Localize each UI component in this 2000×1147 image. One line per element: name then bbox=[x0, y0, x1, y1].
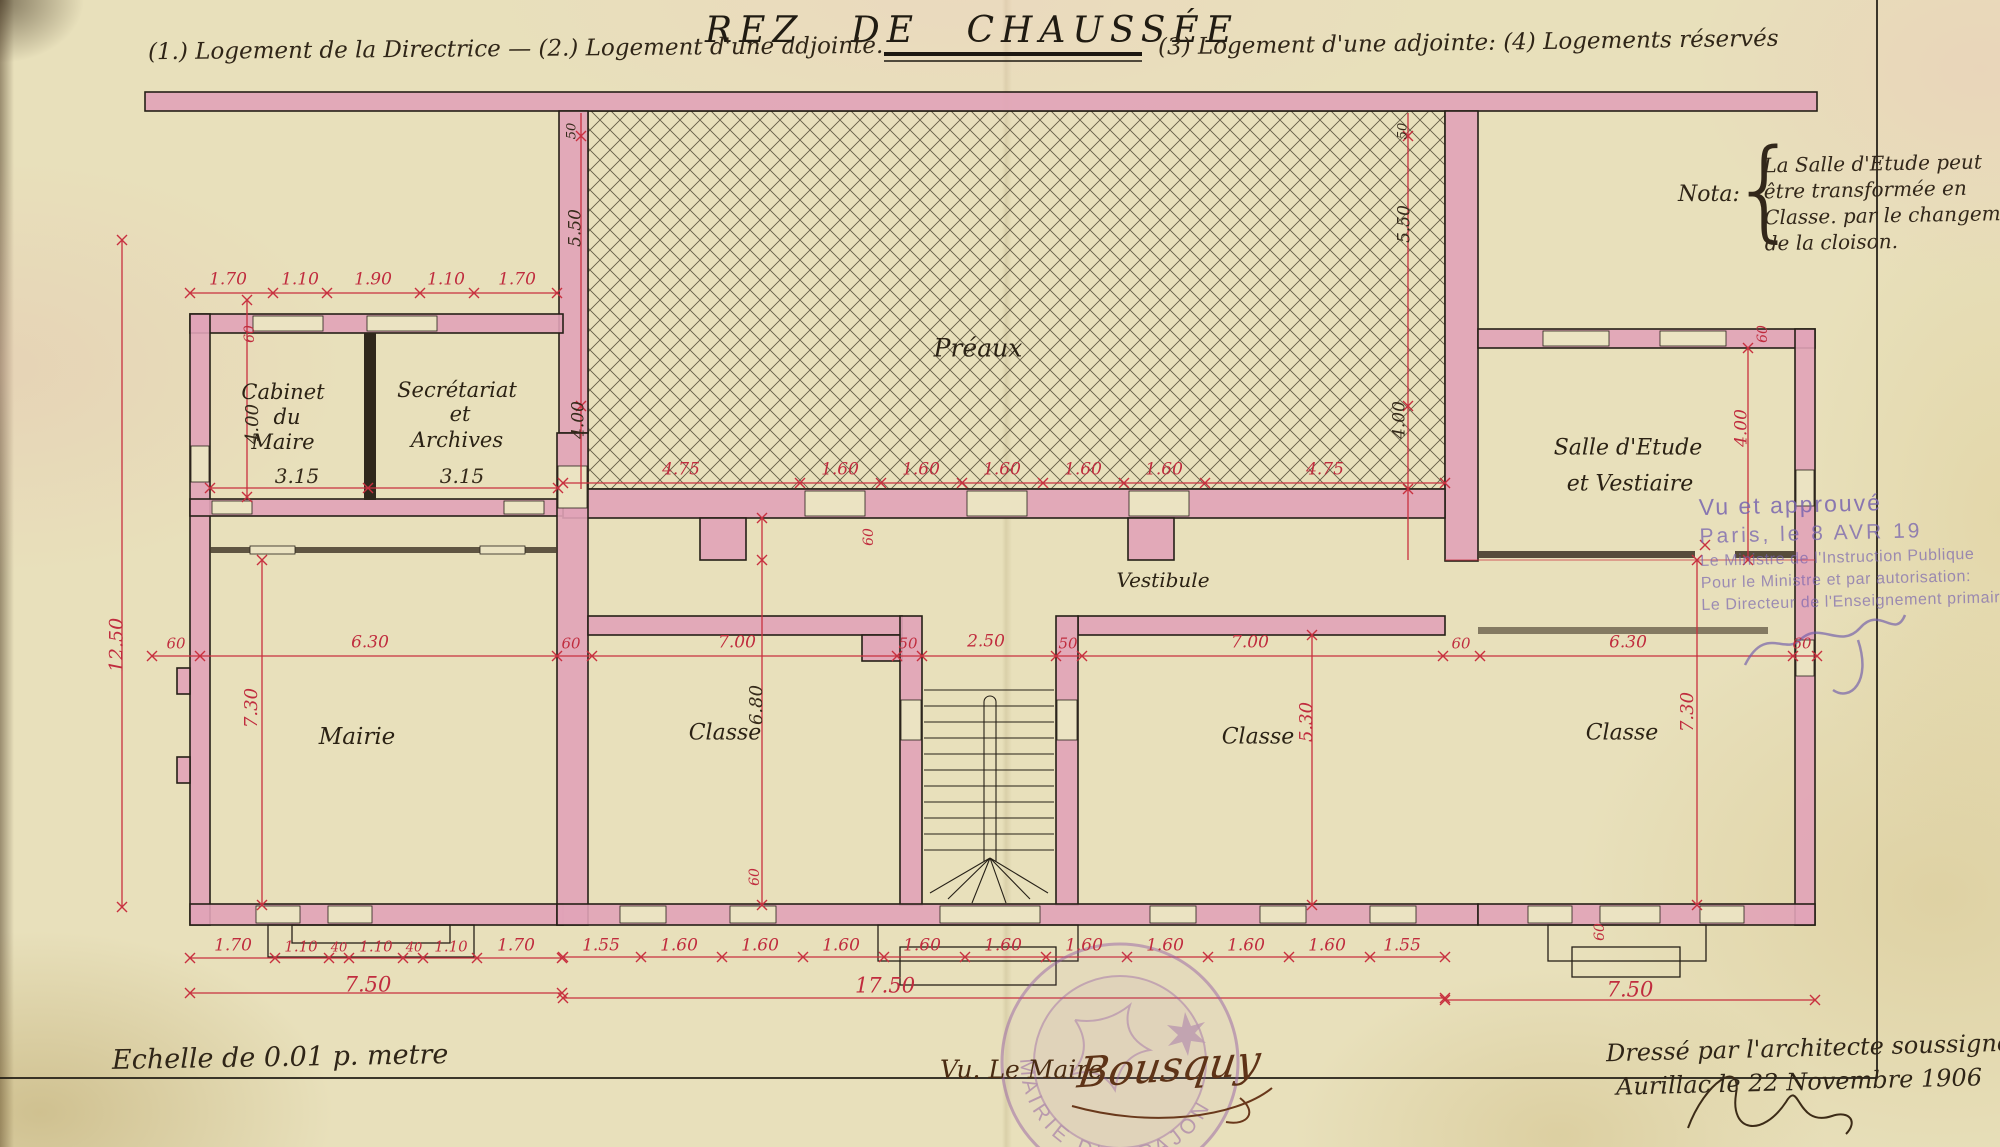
dimension-label: 40 bbox=[331, 942, 348, 955]
dimension-label: 7.50 bbox=[1607, 980, 1654, 1001]
dimension-label: 1.55 bbox=[1383, 938, 1421, 955]
dimension-label: 4.00 bbox=[571, 401, 588, 439]
dimension-label: 60 bbox=[243, 325, 257, 343]
scanned-floor-plan-sheet: { "title": "REZ DE CHAUSSÉE", "legend": … bbox=[0, 0, 2000, 1147]
dimension-label: 1.70 bbox=[209, 272, 247, 289]
dimension-label: 60 bbox=[1593, 923, 1607, 941]
dimension-label: 1.60 bbox=[741, 938, 779, 955]
scale-note: Echelle de 0.01 p. metre bbox=[112, 1039, 449, 1076]
dimension-label: 1.60 bbox=[1145, 462, 1183, 479]
dimension-label: 4.00 bbox=[1392, 401, 1409, 439]
dimension-label: 1.60 bbox=[1227, 938, 1265, 955]
dimension-label: 4.75 bbox=[662, 462, 700, 479]
dimension-label: 1.10 bbox=[434, 940, 467, 955]
dimension-label: 60 bbox=[862, 528, 876, 546]
approval-stamp-text: Vu et approuvéParis, le 8 AVR 19Le Minis… bbox=[1698, 484, 2000, 616]
dimension-label: 60 bbox=[561, 637, 580, 652]
dimension-label: 1.60 bbox=[1065, 938, 1103, 955]
dimension-label: 1.10 bbox=[284, 940, 317, 955]
dimension-label: 50 bbox=[1058, 637, 1077, 652]
dimension-label: 7.30 bbox=[1679, 692, 1697, 732]
dimension-label: 1.60 bbox=[1308, 938, 1346, 955]
dimension-label: 4.00 bbox=[244, 404, 262, 444]
dimension-label: 2.50 bbox=[967, 634, 1005, 651]
dimension-label: 5.30 bbox=[1298, 702, 1316, 742]
dimension-label: 3.15 bbox=[440, 466, 485, 486]
dimension-label: 1.55 bbox=[582, 938, 620, 955]
dimension-label: 6.30 bbox=[1609, 635, 1647, 652]
dimension-label: 1.60 bbox=[1064, 462, 1102, 479]
dimension-label: 60 bbox=[1792, 637, 1811, 652]
dimension-label: 50 bbox=[898, 637, 917, 652]
dimension-label: 50 bbox=[1397, 123, 1410, 140]
dimension-label: 1.10 bbox=[427, 272, 465, 289]
dimension-label: 1.70 bbox=[498, 272, 536, 289]
dimension-label: 7.00 bbox=[1231, 635, 1269, 652]
dimension-label: 1.90 bbox=[354, 272, 392, 289]
dimension-label: 60 bbox=[1756, 325, 1770, 343]
dimension-label: 6.80 bbox=[748, 685, 766, 725]
dimension-label: 17.50 bbox=[855, 976, 915, 997]
dimension-label: 1.10 bbox=[281, 272, 319, 289]
dimension-label: 60 bbox=[166, 637, 185, 652]
dimension-label: 7.50 bbox=[345, 975, 392, 996]
dimension-label: 1.60 bbox=[1146, 938, 1184, 955]
dimension-label: 1.60 bbox=[822, 938, 860, 955]
dimension-label: 3.15 bbox=[275, 466, 320, 486]
dimension-label: 1.60 bbox=[983, 462, 1021, 479]
dimension-label: 1.60 bbox=[984, 938, 1022, 955]
dimension-label: 7.30 bbox=[243, 688, 261, 728]
dimension-label: 6.30 bbox=[351, 635, 389, 652]
dimension-label: 1.70 bbox=[214, 938, 252, 955]
dimension-label: 12.50 bbox=[108, 618, 127, 672]
dimension-label: 40 bbox=[406, 942, 423, 955]
dimension-label: 1.10 bbox=[359, 940, 392, 955]
dimension-label: 5.50 bbox=[1397, 205, 1414, 243]
dimension-label: 60 bbox=[748, 868, 762, 886]
dimension-label: 60 bbox=[1451, 637, 1470, 652]
dimension-label: 1.60 bbox=[660, 938, 698, 955]
dimension-label: 50 bbox=[566, 123, 579, 140]
dimension-label: 7.00 bbox=[718, 635, 756, 652]
dimension-label: 4.00 bbox=[1734, 409, 1751, 447]
dimension-label: 1.60 bbox=[821, 462, 859, 479]
dimension-label: 1.70 bbox=[497, 938, 535, 955]
dimension-label: 5.50 bbox=[568, 209, 585, 247]
dimension-label: 1.60 bbox=[902, 462, 940, 479]
dimension-label: 1.60 bbox=[903, 938, 941, 955]
dimension-label: 4.75 bbox=[1306, 462, 1344, 479]
